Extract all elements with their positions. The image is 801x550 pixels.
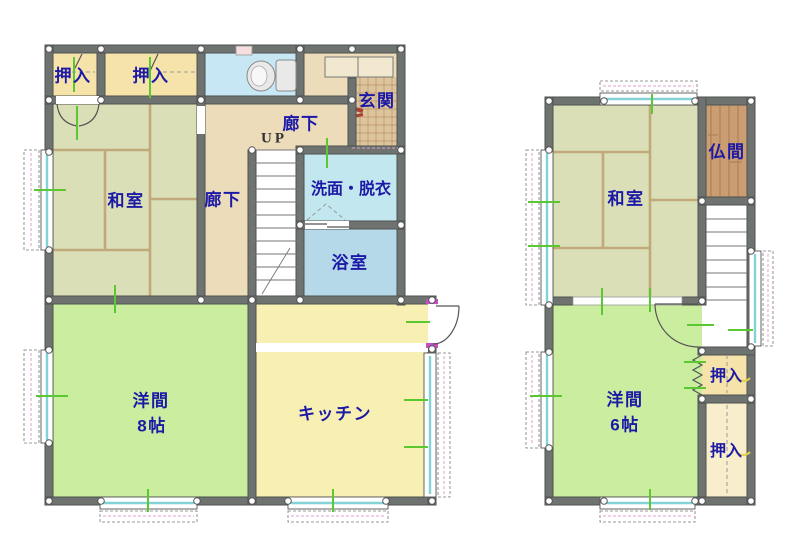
floor-plan-canvas: 押入 押入 玄関 廊下 UP 廊下 和室 洗面・脱衣 浴室 洋間 8帖 キッチン… xyxy=(0,0,801,550)
shoe-cabinet-1f xyxy=(325,57,393,77)
room-size-western-2f: 6帖 xyxy=(610,411,639,436)
window-stairs-right-2f xyxy=(749,251,773,346)
room-label-kitchen-1f: キッチン xyxy=(298,400,372,425)
room-label-entrance-1f: 玄関 xyxy=(359,87,396,112)
room-size-western-1f: 8帖 xyxy=(137,412,166,437)
rooms-1f xyxy=(49,49,432,501)
window-japanese-top-2f xyxy=(600,81,697,105)
room-label-japanese-2f: 和室 xyxy=(608,185,645,210)
room-label-japanese-1f: 和室 xyxy=(108,187,145,212)
room-label-closet-a-1f: 押入 xyxy=(55,62,92,87)
room-label-bathroom-1f: 浴室 xyxy=(332,249,369,274)
room-label-closet-upper-2f: 押入 xyxy=(710,362,742,386)
room-label-washroom-1f: 洗面・脱衣 xyxy=(311,175,391,199)
window-kitchen-bottom-1f xyxy=(288,497,388,522)
window-toilet-top-1f xyxy=(236,46,252,55)
stairs-up-label-1f: UP xyxy=(261,131,287,148)
floor-plan-drawing xyxy=(0,0,801,550)
window-western-left-2f xyxy=(526,352,553,448)
window-japanese-left-2f xyxy=(526,150,553,305)
room-label-hall-upper-1f: 廊下 xyxy=(283,110,320,135)
stairs-1f xyxy=(252,150,300,297)
window-western-bottom-2f xyxy=(600,497,695,522)
room-label-closet-b-1f: 押入 xyxy=(133,62,170,87)
room-label-western-2f: 洋間 xyxy=(607,386,644,411)
window-kitchen-right-1f xyxy=(424,353,450,497)
room-label-corridor-1f: 廊下 xyxy=(205,186,242,211)
room-label-altar-2f: 仏間 xyxy=(709,138,746,163)
room-label-closet-lower-2f: 押入 xyxy=(710,437,742,461)
window-japanese-left-1f xyxy=(24,150,53,250)
room-label-western-1f: 洋間 xyxy=(133,387,170,412)
